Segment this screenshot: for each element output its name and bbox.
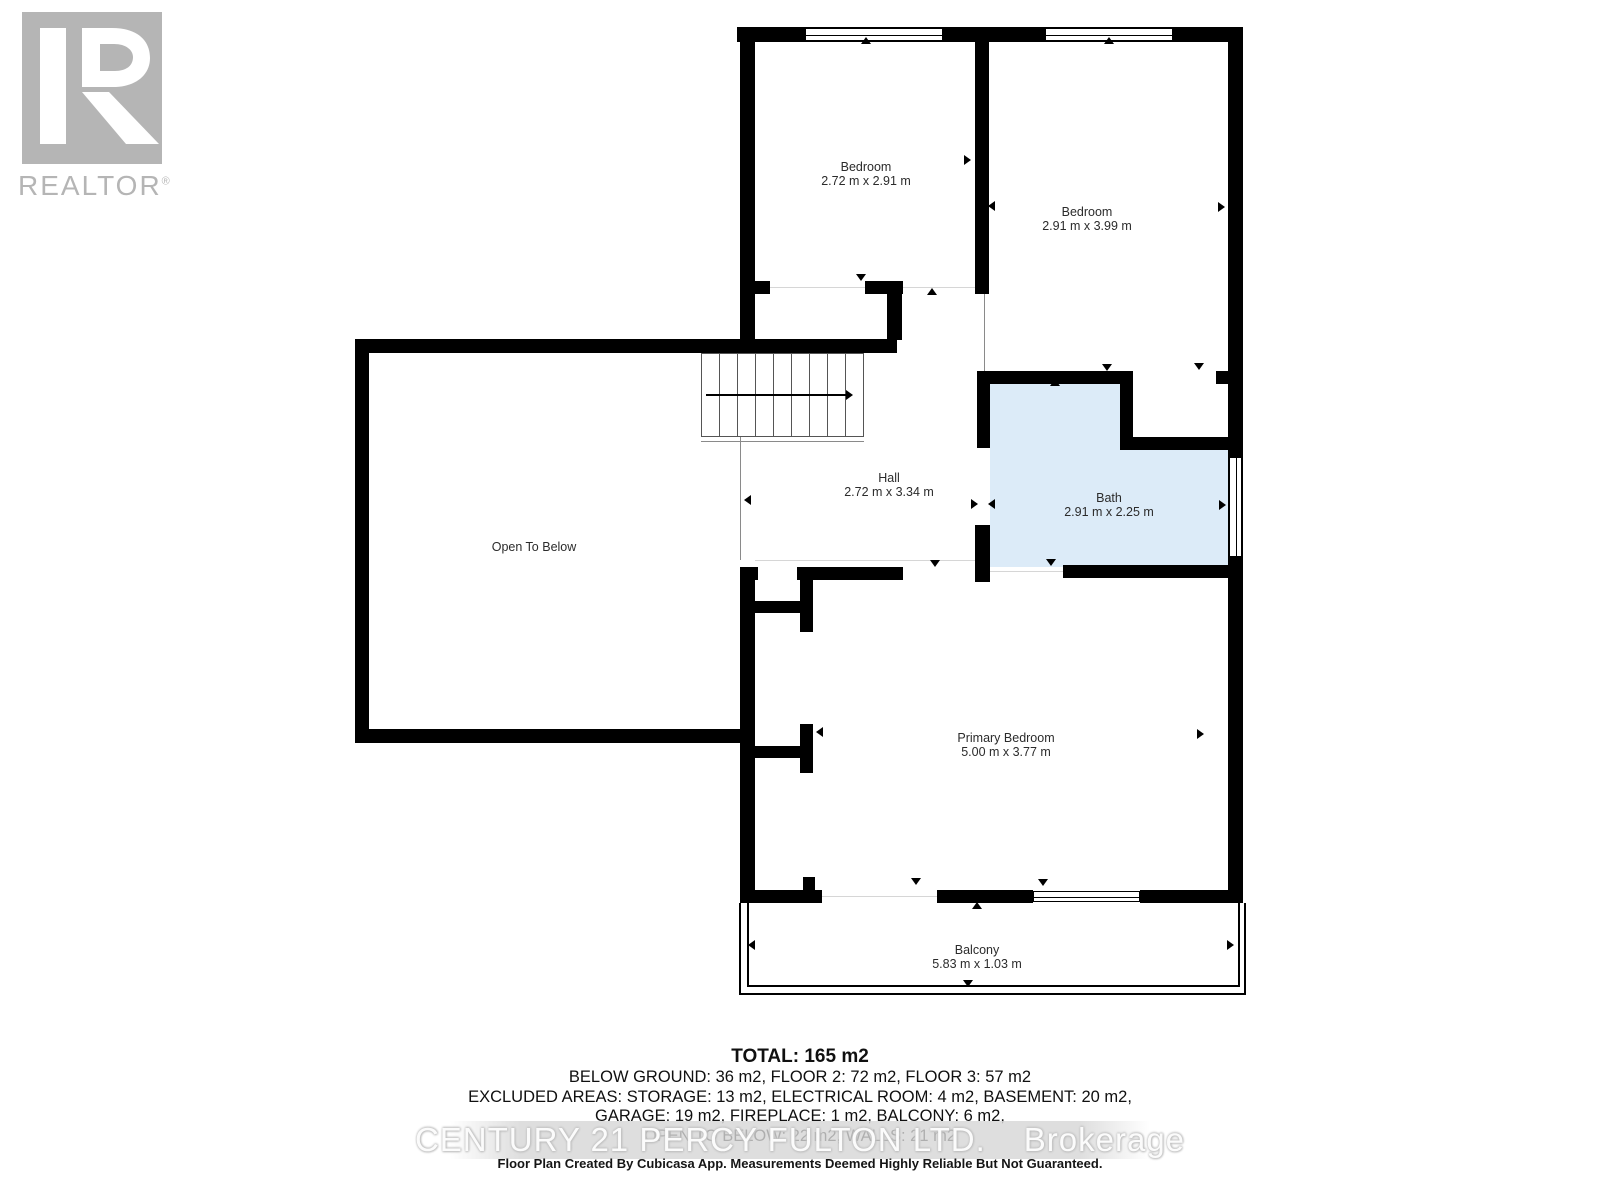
room-label-bedroom-2: Bedroom 2.91 m x 3.99 m — [1042, 205, 1132, 233]
threshold-line — [755, 560, 975, 561]
room-dimensions: 2.91 m x 3.99 m — [1042, 219, 1132, 233]
window — [1229, 457, 1242, 557]
disclaimer-text: Floor Plan Created By Cubicasa App. Meas… — [0, 1156, 1600, 1171]
floor-plan-page: REALTOR® — [0, 0, 1600, 1200]
wall — [1140, 890, 1243, 903]
door-direction-arrow-icon — [747, 153, 754, 163]
wall — [1120, 437, 1228, 450]
door-direction-arrow-icon — [988, 499, 995, 509]
window — [805, 28, 943, 41]
balcony-railing — [1244, 903, 1246, 995]
wall — [740, 890, 822, 903]
balcony-railing — [739, 993, 1246, 995]
door-direction-arrow-icon — [1219, 500, 1226, 510]
room-name: Balcony — [932, 943, 1022, 957]
wall — [865, 281, 903, 294]
door-direction-arrow-icon — [816, 727, 823, 737]
wall — [1216, 371, 1228, 384]
total-area-text: TOTAL: 165 m2 — [0, 1045, 1600, 1068]
door-direction-arrow-icon — [971, 499, 978, 509]
room-name: Bath — [1064, 491, 1154, 505]
stair-arrow-head-icon — [846, 390, 853, 400]
excluded-areas-text: EXCLUDED AREAS: STORAGE: 13 m2, ELECTRIC… — [0, 1088, 1600, 1108]
room-dimensions: 2.72 m x 3.34 m — [844, 485, 934, 499]
threshold-line — [822, 896, 937, 897]
door-direction-arrow-icon — [1227, 940, 1234, 950]
door-direction-arrow-icon — [964, 155, 971, 165]
door-direction-arrow-icon — [930, 560, 940, 567]
wall — [740, 567, 755, 903]
window — [1033, 891, 1140, 902]
door-direction-arrow-icon — [1104, 37, 1114, 44]
door-direction-arrow-icon — [1194, 363, 1204, 370]
wall — [740, 281, 770, 294]
brokerage-watermark: CENTURY 21 PERCY FULTON LTD. Brokerage — [450, 1121, 1150, 1159]
room-label-bedroom-1: Bedroom 2.72 m x 2.91 m — [821, 160, 911, 188]
room-name: Primary Bedroom — [957, 731, 1054, 745]
realtor-wordmark: REALTOR® — [18, 170, 172, 202]
room-name: Hall — [844, 471, 934, 485]
door-direction-arrow-icon — [927, 288, 937, 295]
door-direction-arrow-icon — [988, 201, 995, 211]
wall — [975, 27, 989, 294]
room-label-primary-bedroom: Primary Bedroom 5.00 m x 3.77 m — [957, 731, 1054, 759]
room-dimensions: 2.72 m x 2.91 m — [821, 174, 911, 188]
room-label-bath: Bath 2.91 m x 2.25 m — [1064, 491, 1154, 519]
threshold-line — [903, 287, 975, 288]
wall — [1063, 565, 1228, 578]
balcony-railing — [1238, 903, 1240, 987]
door-direction-arrow-icon — [744, 495, 751, 505]
realtor-r-icon — [22, 12, 162, 164]
door-direction-arrow-icon — [1218, 202, 1225, 212]
registered-symbol: ® — [162, 176, 172, 188]
room-dimensions: 5.83 m x 1.03 m — [932, 957, 1022, 971]
door-direction-arrow-icon — [963, 980, 973, 987]
door-direction-arrow-icon — [1046, 559, 1056, 566]
wall — [355, 729, 755, 743]
room-label-open-to-below: Open To Below — [492, 540, 577, 554]
door-direction-arrow-icon — [748, 940, 755, 950]
balcony-railing — [747, 985, 1240, 987]
brokerage-name: CENTURY 21 PERCY FULTON LTD. — [415, 1121, 986, 1159]
room-dimensions: 2.91 m x 2.25 m — [1064, 505, 1154, 519]
balcony-railing — [739, 903, 741, 995]
room-label-hall: Hall 2.72 m x 3.34 m — [844, 471, 934, 499]
room-name: Bedroom — [821, 160, 911, 174]
room-name: Open To Below — [492, 540, 577, 554]
room-dimensions: 5.00 m x 3.77 m — [957, 745, 1054, 759]
room-label-balcony: Balcony 5.83 m x 1.03 m — [932, 943, 1022, 971]
stair-edge-line — [701, 441, 864, 442]
realtor-logo — [22, 12, 162, 164]
room-boundary-line — [984, 294, 985, 371]
door-direction-arrow-icon — [1102, 364, 1112, 371]
brokerage-suffix: Brokerage — [1024, 1121, 1185, 1159]
wall — [977, 371, 990, 448]
door-direction-arrow-icon — [861, 37, 871, 44]
stair-edge-line — [740, 437, 741, 560]
door-direction-arrow-icon — [911, 878, 921, 885]
door-direction-arrow-icon — [1050, 379, 1060, 386]
door-direction-arrow-icon — [1038, 879, 1048, 886]
floor-areas-text: BELOW GROUND: 36 m2, FLOOR 2: 72 m2, FLO… — [0, 1068, 1600, 1088]
wall — [887, 294, 902, 340]
threshold-line — [990, 571, 1063, 572]
stair-direction-arrow — [706, 394, 846, 396]
wall — [800, 724, 813, 773]
wall — [355, 339, 897, 353]
door-direction-arrow-icon — [972, 902, 982, 909]
wall — [975, 525, 990, 582]
realtor-wordmark-text: REALTOR — [18, 170, 162, 201]
wall — [937, 890, 1033, 903]
room-name: Bedroom — [1042, 205, 1132, 219]
door-direction-arrow-icon — [1197, 729, 1204, 739]
door-direction-arrow-icon — [856, 274, 866, 281]
threshold-line — [770, 287, 865, 288]
bath-floor-fill — [990, 384, 1120, 454]
wall — [355, 339, 369, 743]
wall — [800, 567, 813, 632]
